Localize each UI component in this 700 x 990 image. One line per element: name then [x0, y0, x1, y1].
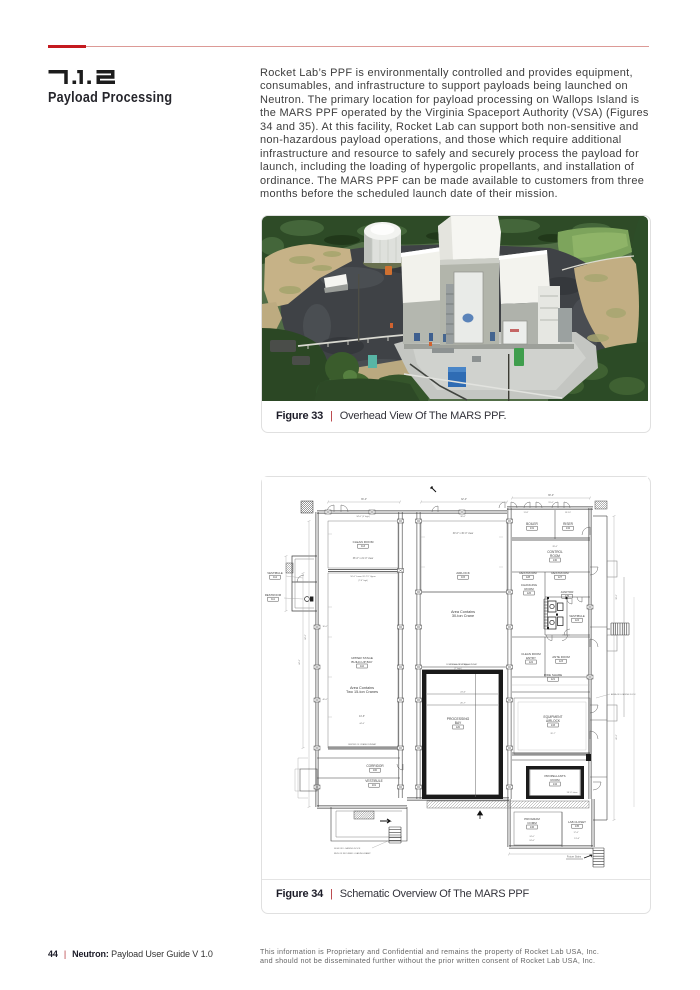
svg-text:38'-0": 38'-0" [616, 594, 618, 599]
svg-text:(7' high): (7' high) [454, 668, 461, 670]
svg-text:RESTROOM: RESTROOM [265, 593, 282, 597]
svg-text:VESTIBULE: VESTIBULE [569, 614, 585, 618]
svg-text:ROOM: ROOM [550, 554, 560, 558]
svg-text:SIGN OF LOADING DOCK: SIGN OF LOADING DOCK [334, 847, 361, 850]
svg-text:RISER: RISER [563, 522, 573, 526]
svg-text:CENTER OF CRANE RUNWAY: CENTER OF CRANE RUNWAY [348, 743, 377, 746]
svg-text:RESTROOM: RESTROOM [551, 571, 569, 575]
svg-text:112: 112 [273, 576, 278, 579]
svg-text:15'-0": 15'-0" [548, 502, 554, 504]
svg-text:44'-6": 44'-6" [299, 659, 301, 664]
svg-text:26'-7": 26'-7" [460, 703, 466, 705]
svg-text:115: 115 [461, 576, 466, 579]
svg-text:RUN OF INCLINED LOADING RAMP: RUN OF INCLINED LOADING RAMP [334, 852, 371, 855]
svg-text:RESTROOM: RESTROOM [519, 571, 537, 575]
svg-text:VESTIBULE: VESTIBULE [365, 779, 383, 783]
svg-text:40'-0": 40'-0" [322, 699, 327, 701]
svg-text:13'-6": 13'-6" [574, 838, 580, 840]
svg-text:11'-8": 11'-8" [524, 512, 529, 514]
svg-text:84'-0": 84'-0" [305, 634, 307, 639]
svg-text:132: 132 [566, 527, 571, 530]
svg-text:50'-0" Lower 20'-7.5" Upper: 50'-0" Lower 20'-7.5" Upper [350, 575, 376, 578]
svg-text:131: 131 [530, 527, 535, 530]
svg-text:34'-0" (5' high): 34'-0" (5' high) [356, 516, 370, 518]
svg-text:127: 127 [558, 576, 563, 579]
svg-text:BAY: BAY [455, 721, 462, 725]
svg-text:Future Stairs: Future Stairs [567, 856, 582, 859]
svg-text:100: 100 [373, 769, 378, 772]
svg-text:36'-0" x 21'-0" clear: 36'-0" x 21'-0" clear [353, 557, 374, 560]
svg-text:135: 135 [575, 825, 580, 828]
svg-text:VESTIBULE: VESTIBULE [267, 571, 283, 575]
svg-text:CORRIDOR: CORRIDOR [366, 764, 384, 768]
svg-text:121: 121 [551, 678, 556, 681]
svg-text:113: 113 [361, 545, 366, 548]
svg-text:BOILER: BOILER [526, 522, 538, 526]
svg-text:30'-0" x 30'-0" clear: 30'-0" x 30'-0" clear [453, 532, 474, 535]
svg-text:32'-0": 32'-0" [461, 498, 467, 501]
svg-text:ENTRY: ENTRY [526, 656, 536, 660]
svg-text:24'-6": 24'-6" [460, 692, 466, 694]
svg-text:38'-0": 38'-0" [548, 494, 554, 497]
svg-text:123: 123 [559, 660, 564, 663]
svg-text:126: 126 [527, 592, 532, 595]
svg-text:RIDE SHARE: RIDE SHARE [544, 673, 562, 677]
svg-text:(7'-6" high): (7'-6" high) [358, 580, 368, 582]
svg-text:30-ton Crane: 30-ton Crane [452, 614, 474, 618]
svg-text:ROOM: ROOM [551, 778, 561, 782]
svg-text:136: 136 [530, 826, 535, 829]
svg-text:AIRLOCK: AIRLOCK [456, 571, 471, 575]
svg-text:Two 15-ton Cranes: Two 15-ton Cranes [346, 690, 378, 694]
svg-text:CLEAN ROOM: CLEAN ROOM [353, 540, 374, 544]
svg-text:AIRLOCK: AIRLOCK [546, 719, 561, 723]
svg-text:122: 122 [529, 661, 534, 664]
svg-text:BUILD-UP BAY: BUILD-UP BAY [351, 660, 372, 664]
svg-text:ROOM: ROOM [524, 587, 534, 591]
svg-text:19'-0" clear: 19'-0" clear [567, 791, 578, 794]
svg-text:124: 124 [575, 619, 580, 622]
svg-text:24'-0": 24'-0" [529, 836, 534, 838]
svg-text:17'-6": 17'-6" [573, 832, 578, 834]
svg-text:128: 128 [526, 576, 531, 579]
svg-text:110: 110 [360, 665, 365, 668]
svg-text:134: 134 [553, 783, 558, 786]
svg-text:30'-0": 30'-0" [460, 516, 466, 518]
svg-text:JANITOR: JANITOR [561, 590, 575, 594]
svg-text:AREA OF LOADING DOCK: AREA OF LOADING DOCK [611, 693, 636, 696]
svg-text:44'-6": 44'-6" [359, 723, 365, 725]
svg-text:36'-0": 36'-0" [361, 498, 367, 501]
svg-text:28'-6": 28'-6" [552, 546, 557, 548]
svg-text:ANTE ROOM: ANTE ROOM [552, 655, 570, 659]
svg-text:26'-7": 26'-7" [550, 733, 555, 735]
svg-text:LAB CLOSET: LAB CLOSET [568, 820, 586, 824]
svg-text:16'-0": 16'-0" [322, 626, 327, 628]
svg-text:120: 120 [456, 726, 461, 729]
svg-text:44'-6": 44'-6" [359, 715, 365, 718]
svg-text:133: 133 [551, 724, 556, 727]
svg-text:111: 111 [271, 598, 275, 601]
svg-text:24'-0": 24'-0" [529, 840, 535, 842]
svg-text:101: 101 [372, 784, 377, 787]
svg-text:46'-0": 46'-0" [616, 734, 618, 739]
svg-text:30'-0" Lower 36'-6" Upper: 30'-0" Lower 36'-6" Upper [446, 663, 470, 666]
svg-text:13'-10": 13'-10" [565, 512, 571, 514]
svg-text:130: 130 [553, 559, 558, 562]
svg-text:COMM: COMM [527, 821, 537, 825]
